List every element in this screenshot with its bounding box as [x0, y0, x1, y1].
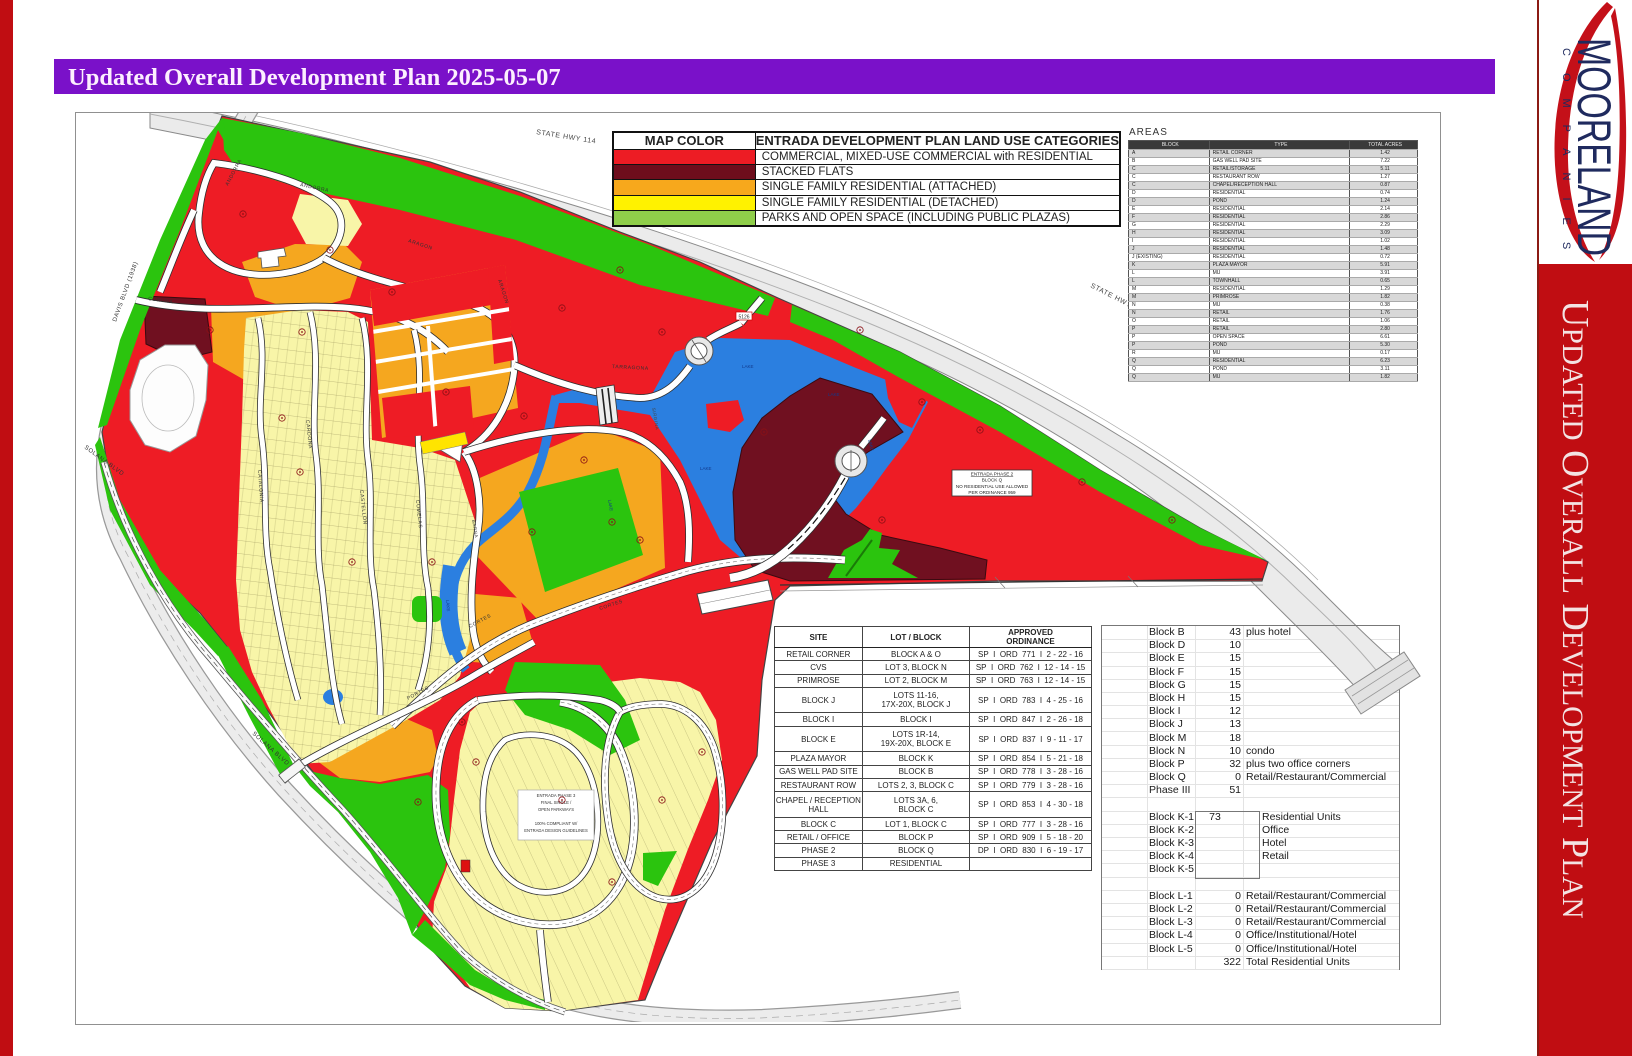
svg-text:MOORELAND: MOORELAND [1568, 38, 1621, 256]
svg-text:COMPANIES: COMPANIES [1560, 48, 1572, 266]
svg-text:UPDATED OVERALL DEVELOPMENT PL: UPDATED OVERALL DEVELOPMENT PLAN [1554, 300, 1596, 919]
